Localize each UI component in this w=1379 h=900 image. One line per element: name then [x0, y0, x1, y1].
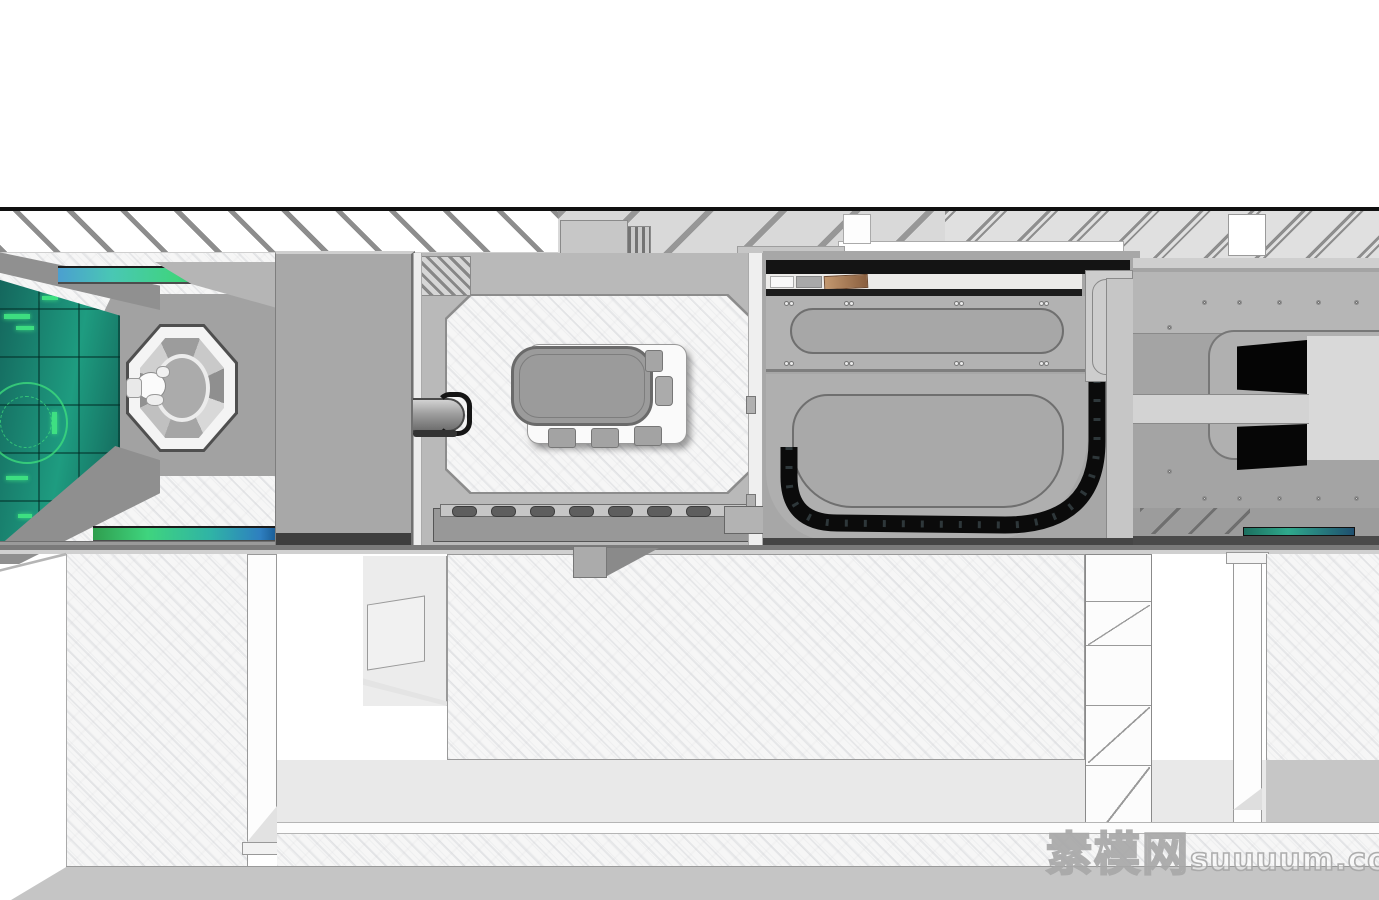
ceiling-white-box-right	[1228, 214, 1266, 256]
tower-line	[1086, 765, 1151, 766]
astronaut-arm	[156, 366, 170, 378]
mid-room-vent-grille	[417, 256, 471, 296]
engine-light-slab	[1307, 336, 1379, 460]
engine-light-bar	[1133, 394, 1309, 424]
engine-wall-top-edge	[1133, 258, 1379, 268]
holo-bar	[18, 514, 32, 518]
lower-right-grey-block	[1266, 760, 1379, 826]
engine-upper-panel	[1133, 272, 1379, 334]
chair-bottom-2	[591, 428, 619, 448]
table-top-inner-line	[519, 354, 645, 418]
rivet	[1355, 301, 1358, 304]
lower-console-panel	[367, 595, 425, 670]
mid-room-small-box	[724, 506, 764, 534]
tower-diagonal	[1088, 605, 1150, 645]
rivet	[1355, 497, 1358, 500]
lower-big-wall	[447, 554, 1085, 760]
tower-diagonal	[1088, 707, 1150, 763]
holo-bar	[42, 296, 58, 300]
lower-pillar-right-cap	[1226, 552, 1269, 564]
pillar-tab-1	[746, 396, 756, 414]
tower-line	[1086, 705, 1151, 706]
tower-line	[1086, 645, 1151, 646]
hanging-block	[573, 546, 607, 578]
bench-slot	[608, 506, 633, 517]
rivet	[1203, 301, 1206, 304]
center-grey-block	[275, 251, 415, 547]
bench-slot	[569, 506, 594, 517]
chair-bottom-3	[634, 426, 662, 446]
glass-strip-bottom	[93, 526, 275, 542]
bench-slot	[686, 506, 711, 517]
lower-left-wall	[66, 554, 248, 868]
watermark: 素模网suuuum.com	[1046, 818, 1379, 884]
chair-bottom-1	[548, 428, 576, 448]
bench-slot	[452, 506, 477, 517]
bench-slots	[452, 506, 750, 517]
rivet	[1238, 497, 1241, 500]
table-console-nub	[645, 350, 663, 372]
bench-slot	[491, 506, 516, 517]
holo-bar	[16, 326, 34, 330]
ceiling-white-hanger	[843, 214, 871, 244]
holo-bar	[52, 412, 57, 434]
engine-black-port-lower	[1237, 424, 1307, 470]
rivet	[1203, 497, 1206, 500]
astronaut-leg	[146, 394, 164, 406]
watermark-site: suuuum.com	[1190, 842, 1379, 878]
bench-slot	[647, 506, 672, 517]
rivet	[1317, 301, 1320, 304]
center-grey-block-shadow	[276, 533, 411, 545]
holo-bar	[6, 476, 28, 480]
astronaut-pack	[126, 378, 142, 398]
table-top	[511, 346, 653, 426]
astronaut-figure	[126, 362, 172, 410]
lower-pillar-left-base	[242, 842, 282, 855]
lower-right-wall	[1266, 554, 1379, 760]
rivet	[1278, 301, 1281, 304]
ceiling-ribs-left	[0, 211, 562, 253]
bench-slot	[530, 506, 555, 517]
lower-stepped-tower	[1085, 554, 1152, 854]
wall-pipe-shadow	[413, 430, 457, 437]
holo-bar	[4, 314, 30, 319]
watermark-brand: 素模网	[1046, 818, 1190, 884]
lower-console	[363, 556, 447, 706]
scene-3d-render-spaceship-corridor: 素模网suuuum.com	[0, 0, 1379, 900]
rivet	[1317, 497, 1320, 500]
lower-pillar-left	[247, 554, 277, 842]
engine-bottom-struts	[1140, 508, 1250, 534]
chair-right	[655, 376, 673, 406]
tower-line	[1086, 601, 1151, 602]
rivet	[1278, 497, 1281, 500]
rivet	[1168, 326, 1171, 329]
lower-under-band	[277, 760, 1379, 823]
rivet	[1238, 301, 1241, 304]
rivet	[1168, 470, 1171, 473]
hatch-black-channel	[763, 251, 1140, 551]
engine-black-port-upper	[1237, 340, 1307, 394]
hatch-right-bar	[1106, 278, 1134, 544]
holo-dial-inner	[0, 396, 52, 448]
engine-glass-sliver	[1243, 527, 1355, 536]
